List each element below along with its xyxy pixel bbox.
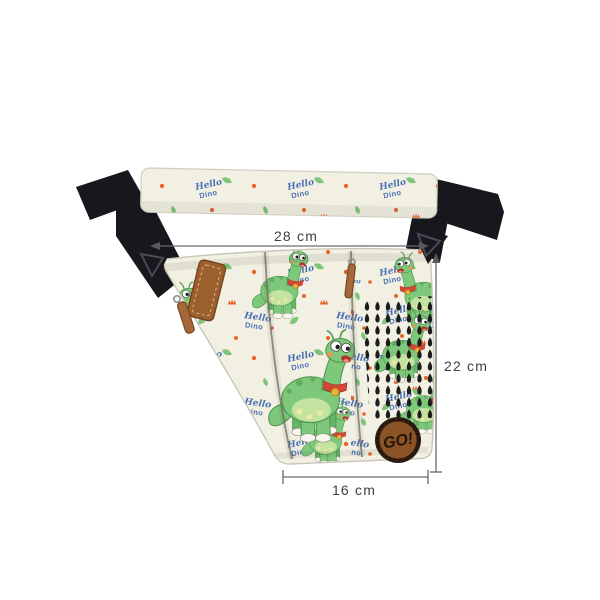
bag-body — [137, 240, 451, 515]
dimension-side-height: 22 cm — [430, 253, 488, 472]
go-badge: GO! — [375, 417, 421, 463]
bottom-width-label: 16 cm — [332, 482, 376, 498]
dimension-top-width: 28 cm — [150, 228, 429, 250]
dimension-bottom-width: 16 cm — [283, 470, 428, 498]
side-height-label: 22 cm — [444, 358, 488, 374]
zipper-ring-icon — [174, 296, 180, 302]
sling-bag-figure: Hello Dino — [0, 0, 600, 600]
product-photo: Hello Dino — [0, 0, 600, 600]
bag-print — [137, 240, 451, 515]
tree-print-panel — [362, 296, 433, 420]
strap-pad — [130, 165, 450, 225]
strap-pad-print — [130, 165, 450, 225]
top-width-label: 28 cm — [274, 228, 318, 244]
